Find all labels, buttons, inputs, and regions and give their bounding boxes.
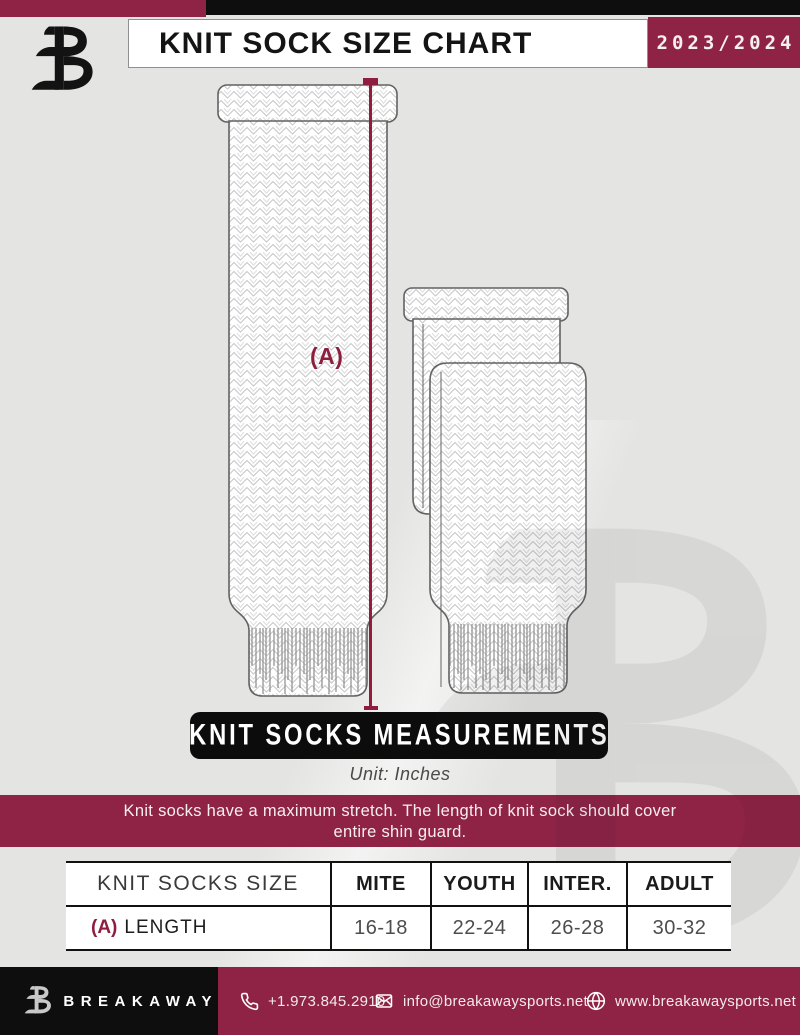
phone-number: +1.973.845.2910 [268,993,386,1010]
value-adult: 30-32 [626,907,731,949]
top-strip-black [206,0,800,15]
row-label-text: LENGTH [124,917,207,939]
row-key-a: (A) [91,917,117,939]
row-label-length: (A) LENGTH [66,907,330,949]
footer-contact-section: +1.973.845.2910 info@breakawaysports.net… [218,967,800,1035]
season-badge: 2023/2024 [648,17,800,68]
sock-front-rib [450,624,566,690]
page-title: KNIT SOCK SIZE CHART [159,27,532,61]
title-box: KNIT SOCK SIZE CHART [128,19,648,68]
website-contact: www.breakawaysports.net [586,967,796,1035]
col-header-youth: YOUTH [430,863,527,907]
measurements-banner-text: KNIT SOCKS MEASUREMENTS [189,718,610,752]
notice-line-2: entire shin guard. [0,822,800,843]
top-strip-maroon [0,0,206,17]
phone-contact: +1.973.845.2910 [240,967,386,1035]
measurements-banner: KNIT SOCKS MEASUREMENTS [190,712,608,759]
notice-line-1: Knit socks have a maximum stretch. The l… [0,801,800,822]
email-address: info@breakawaysports.net [403,993,588,1010]
unit-label: Unit: Inches [0,764,800,785]
value-youth: 22-24 [430,907,527,949]
email-contact: info@breakawaysports.net [374,967,588,1035]
stretch-notice: Knit socks have a maximum stretch. The l… [0,795,800,847]
size-table: KNIT SOCKS SIZE MITE YOUTH INTER. ADULT … [66,861,731,951]
footer-brand-section: BREAKAWAY [0,967,218,1035]
season-label: 2023/2024 [657,32,796,54]
col-header-inter: INTER. [527,863,626,907]
breakaway-logo-icon [24,24,102,98]
website-url: www.breakawaysports.net [615,993,796,1010]
value-inter: 26-28 [527,907,626,949]
email-icon [374,992,394,1010]
dimension-a-label: (A) [310,343,343,370]
col-header-adult: ADULT [626,863,731,907]
knit-sock-size-chart-poster: KNIT SOCK SIZE CHART 2023/2024 (A) KNIT … [0,0,800,1035]
globe-icon [586,991,606,1011]
phone-icon [240,992,259,1011]
breakaway-footer-logo-icon [24,981,52,1021]
sock-small-front [430,363,586,693]
brand-name: BREAKAWAY [63,993,218,1010]
value-mite: 16-18 [330,907,430,949]
sock-large-rib [250,628,366,694]
col-header-mite: MITE [330,863,430,907]
col-header-size: KNIT SOCKS SIZE [66,863,330,907]
